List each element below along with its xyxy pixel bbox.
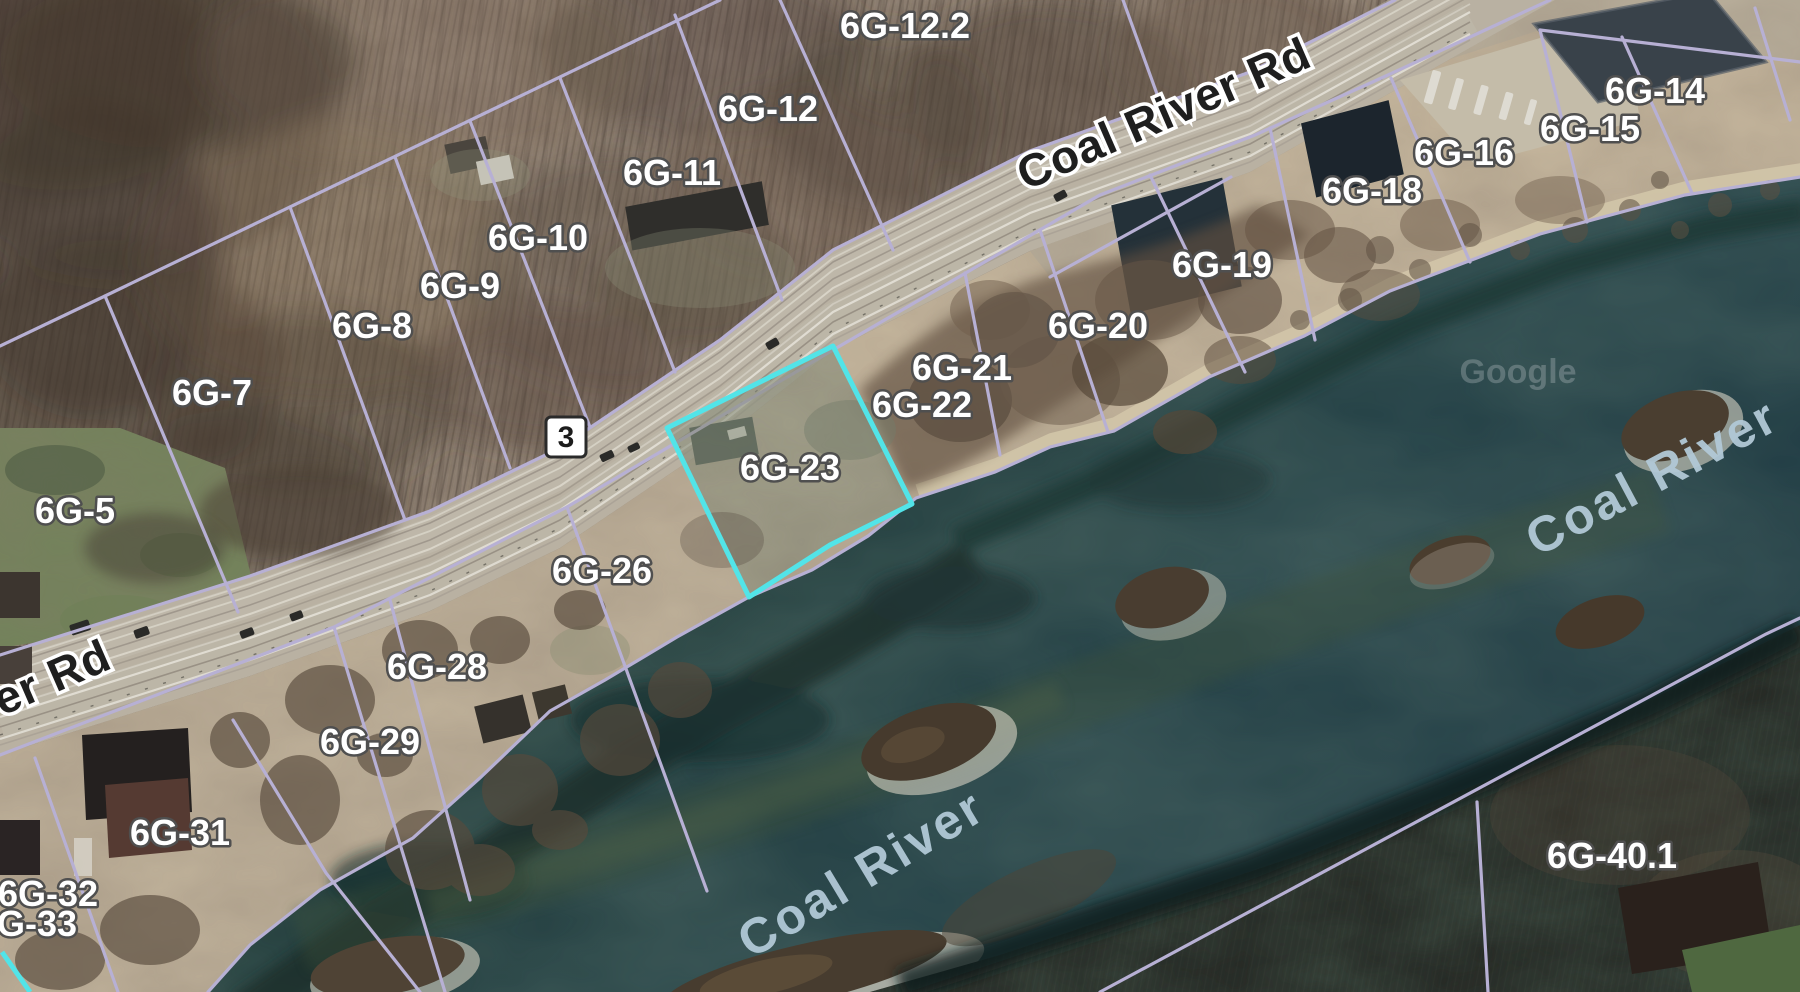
svg-text:6G-21: 6G-21	[912, 347, 1012, 388]
svg-text:6G-19: 6G-19	[1172, 244, 1272, 285]
svg-text:6G-26: 6G-26	[552, 550, 652, 591]
svg-text:Google: Google	[1459, 353, 1576, 391]
svg-text:6G-8: 6G-8	[332, 305, 412, 346]
svg-text:6G-22: 6G-22	[872, 384, 972, 425]
svg-text:6G-12: 6G-12	[718, 88, 818, 129]
svg-text:6G-5: 6G-5	[35, 490, 115, 531]
svg-text:6G-31: 6G-31	[130, 812, 230, 853]
svg-text:6G-12.2: 6G-12.2	[840, 5, 970, 46]
svg-text:6G-23: 6G-23	[740, 447, 840, 488]
svg-text:6G-40.1: 6G-40.1	[1547, 835, 1677, 876]
svg-text:6G-11: 6G-11	[623, 152, 721, 193]
svg-text:6G-20: 6G-20	[1048, 305, 1148, 346]
svg-text:6G-29: 6G-29	[320, 721, 420, 762]
svg-text:6G-10: 6G-10	[488, 217, 588, 258]
svg-text:6G-16: 6G-16	[1414, 132, 1514, 173]
svg-text:6G-33: 6G-33	[0, 903, 77, 944]
svg-text:3: 3	[558, 421, 575, 454]
svg-text:6G-18: 6G-18	[1322, 170, 1422, 211]
svg-text:6G-28: 6G-28	[387, 646, 487, 687]
svg-text:6G-7: 6G-7	[172, 372, 252, 413]
svg-text:6G-14: 6G-14	[1605, 70, 1705, 111]
svg-text:6G-9: 6G-9	[420, 265, 500, 306]
svg-text:6G-15: 6G-15	[1540, 108, 1640, 149]
